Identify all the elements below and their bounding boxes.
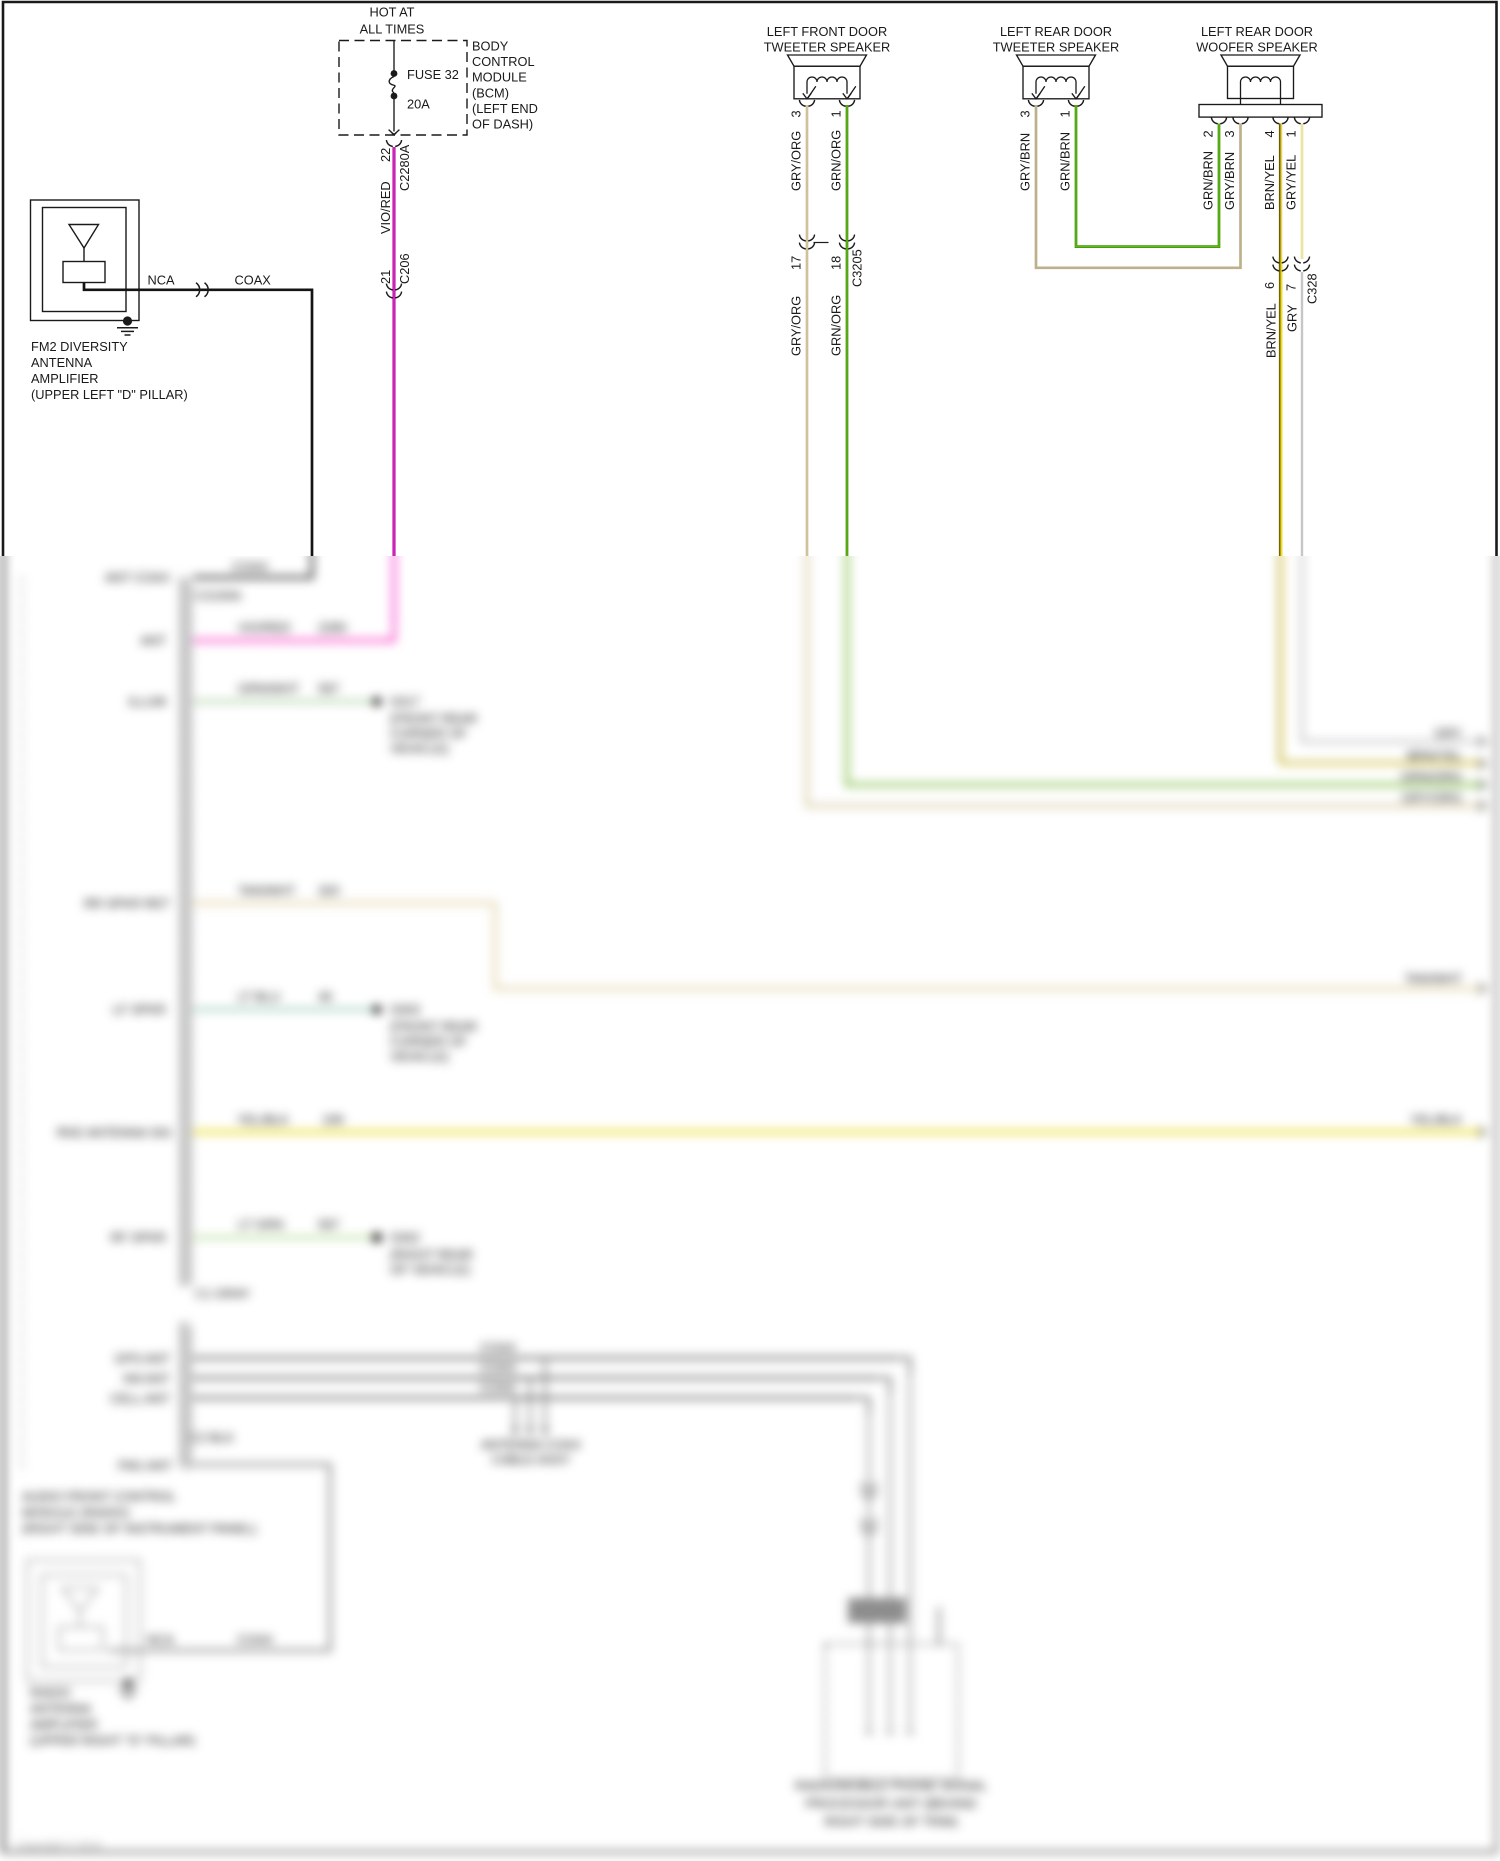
svg-text:LEFT REAR DOOR: LEFT REAR DOOR <box>1000 24 1112 39</box>
svg-text:4: 4 <box>1262 130 1277 137</box>
svg-text:C206: C206 <box>397 253 412 284</box>
svg-text:YEL/BLK: YEL/BLK <box>237 1112 289 1127</box>
svg-text:1: 1 <box>1058 110 1073 117</box>
svg-text:RF SPKR: RF SPKR <box>111 1230 166 1245</box>
svg-text:NCA: NCA <box>148 273 175 288</box>
svg-text:ANT COAX: ANT COAX <box>105 570 171 585</box>
svg-text:RR SPKR RET: RR SPKR RET <box>84 896 170 911</box>
svg-text:LEFT FRONT DOOR: LEFT FRONT DOOR <box>767 24 887 39</box>
svg-text:20A: 20A <box>407 97 430 112</box>
svg-text:NCA: NCA <box>147 1632 174 1647</box>
svg-text:(LEFT END: (LEFT END <box>472 101 538 116</box>
svg-text:3: 3 <box>1222 130 1237 137</box>
svg-text:COAX: COAX <box>480 1340 517 1355</box>
svg-text:2: 2 <box>1201 130 1216 137</box>
svg-text:C2280A: C2280A <box>397 144 412 191</box>
svg-text:1: 1 <box>1284 130 1299 137</box>
svg-text:CONTROL: CONTROL <box>472 54 535 69</box>
svg-text:COAX: COAX <box>235 273 272 288</box>
svg-text:GRY/ORG: GRY/ORG <box>1402 790 1462 805</box>
svg-text:TWEETER SPEAKER: TWEETER SPEAKER <box>764 40 891 55</box>
svg-text:COAX: COAX <box>480 1360 517 1375</box>
svg-text:GRN/BRN: GRN/BRN <box>1058 132 1073 191</box>
svg-text:GRN/WHT: GRN/WHT <box>238 681 299 696</box>
svg-text:WOOFER SPEAKER: WOOFER SPEAKER <box>1196 40 1318 55</box>
svg-text:AUDIO FRONT CONTROL: AUDIO FRONT CONTROL <box>22 1489 176 1504</box>
svg-text:587: 587 <box>318 1217 339 1232</box>
svg-text:C328: C328 <box>1305 273 1320 304</box>
svg-text:HOT AT: HOT AT <box>369 5 414 20</box>
svg-text:46: 46 <box>318 989 332 1004</box>
svg-text:LT GRN: LT GRN <box>238 1217 284 1232</box>
svg-text:AMPLIFIER: AMPLIFIER <box>31 371 99 386</box>
svg-text:RADIO/MOBILE PHONE SIGNAL: RADIO/MOBILE PHONE SIGNAL <box>795 1778 987 1793</box>
svg-text:GRY/BRN: GRY/BRN <box>1018 133 1033 191</box>
svg-text:320: 320 <box>318 883 339 898</box>
svg-text:3: 3 <box>1018 110 1033 117</box>
svg-text:GRY: GRY <box>1285 304 1300 332</box>
svg-text:GRY: GRY <box>1435 726 1463 741</box>
svg-text:C2 BLK: C2 BLK <box>190 1430 235 1445</box>
svg-text:587: 587 <box>318 681 339 696</box>
svg-text:XM ANT: XM ANT <box>122 1371 170 1386</box>
svg-text:22: 22 <box>378 148 393 162</box>
svg-text:OF VEHICLE): OF VEHICLE) <box>390 1262 470 1277</box>
svg-text:C3205: C3205 <box>850 249 865 287</box>
svg-text:RADIO: RADIO <box>30 1685 71 1700</box>
svg-text:GRN/ORG: GRN/ORG <box>829 130 844 191</box>
svg-text:VEHICLE): VEHICLE) <box>390 741 449 756</box>
svg-text:COAX: COAX <box>232 559 269 574</box>
svg-text:ILLUM: ILLUM <box>128 694 166 709</box>
svg-text:MODULE (RADIO): MODULE (RADIO) <box>22 1505 129 1520</box>
svg-text:(UPPER LEFT "D" PILLAR): (UPPER LEFT "D" PILLAR) <box>31 387 188 402</box>
svg-text:7: 7 <box>1284 284 1299 291</box>
svg-text:BRN/YEL: BRN/YEL <box>1264 303 1279 358</box>
svg-text:COAX: COAX <box>237 1632 274 1647</box>
svg-text:6: 6 <box>1262 282 1277 289</box>
svg-text:GPS ANT: GPS ANT <box>115 1351 171 1366</box>
svg-text:BRN/YEL: BRN/YEL <box>1407 748 1462 763</box>
svg-text:CELL ANT: CELL ANT <box>110 1391 170 1406</box>
svg-text:(UPPER RIGHT "D" PILLAR): (UPPER RIGHT "D" PILLAR) <box>30 1733 195 1748</box>
svg-text:TAN/WHT: TAN/WHT <box>238 883 296 898</box>
svg-text:COAX: COAX <box>480 1380 517 1395</box>
svg-text:GRY/YEL: GRY/YEL <box>1284 155 1299 210</box>
svg-text:RIGHT SIDE OF TRIM): RIGHT SIDE OF TRIM) <box>824 1814 957 1829</box>
svg-text:21: 21 <box>378 270 393 284</box>
svg-text:TAN/WHT: TAN/WHT <box>1405 971 1463 986</box>
svg-text:ANTENNA COAX: ANTENNA COAX <box>481 1437 582 1452</box>
svg-text:YEL/BLK: YEL/BLK <box>1410 1112 1462 1127</box>
svg-text:199: 199 <box>322 1112 343 1127</box>
svg-text:GRN/ORG: GRN/ORG <box>829 295 844 356</box>
svg-text:BODY: BODY <box>472 39 509 54</box>
svg-text:LEFT REAR DOOR: LEFT REAR DOOR <box>1201 24 1313 39</box>
svg-text:S302: S302 <box>390 1230 420 1245</box>
svg-text:(BCM): (BCM) <box>472 85 509 100</box>
svg-text:(FRONT REAR: (FRONT REAR <box>390 1019 477 1034</box>
svg-text:TWEETER SPEAKER: TWEETER SPEAKER <box>993 40 1120 55</box>
svg-text:VIO/RED: VIO/RED <box>378 181 393 234</box>
svg-text:CORNER OF: CORNER OF <box>390 726 467 741</box>
svg-text:GRY/ORG: GRY/ORG <box>789 131 804 191</box>
svg-text:GRY/ORG: GRY/ORG <box>789 296 804 356</box>
svg-text:GRN/ORG: GRN/ORG <box>1401 769 1462 784</box>
svg-text:18: 18 <box>829 256 844 270</box>
svg-text:ANT: ANT <box>140 633 166 648</box>
svg-text:PROCESSOR UNIT (BEHIND: PROCESSOR UNIT (BEHIND <box>805 1796 976 1811</box>
svg-text:C1 GRAY: C1 GRAY <box>195 1286 251 1301</box>
svg-text:ANTENNA: ANTENNA <box>30 1701 92 1716</box>
svg-text:1: 1 <box>829 110 844 117</box>
svg-text:MODULE: MODULE <box>472 70 527 85</box>
svg-text:OF DASH): OF DASH) <box>472 117 533 132</box>
svg-text:LF SPKR: LF SPKR <box>113 1002 166 1017</box>
svg-text:GRN/BRN: GRN/BRN <box>1201 151 1216 210</box>
svg-text:ALL TIMES: ALL TIMES <box>360 22 425 37</box>
svg-text:AMPLIFIER: AMPLIFIER <box>30 1717 98 1732</box>
svg-text:BRN/YEL: BRN/YEL <box>1262 155 1277 210</box>
svg-text:C2100A: C2100A <box>195 588 242 603</box>
svg-text:FUSE 32: FUSE 32 <box>407 67 459 82</box>
svg-text:CORNER OF: CORNER OF <box>390 1034 467 1049</box>
svg-text:17: 17 <box>789 256 804 270</box>
svg-text:2280: 2280 <box>318 620 346 635</box>
svg-text:ANTENNA: ANTENNA <box>31 355 93 370</box>
svg-text:3: 3 <box>789 110 804 117</box>
svg-text:CABLE ASSY: CABLE ASSY <box>492 1452 571 1467</box>
svg-text:(RIGHT SIDE OF INSTRUMENT PANE: (RIGHT SIDE OF INSTRUMENT PANEL) <box>22 1521 257 1536</box>
svg-text:GRY/BRN: GRY/BRN <box>1222 152 1237 210</box>
svg-text:(RIGHT REAR: (RIGHT REAR <box>390 1247 473 1262</box>
svg-text:LT BLU: LT BLU <box>238 989 280 1004</box>
svg-text:(FRONT REAR: (FRONT REAR <box>390 711 477 726</box>
svg-text:RKE ANTENNA SIG: RKE ANTENNA SIG <box>57 1125 172 1140</box>
svg-text:FM2 DIVERSITY: FM2 DIVERSITY <box>31 339 128 354</box>
svg-text:VIO/RED: VIO/RED <box>238 620 291 635</box>
svg-text:Copyright © 2010: Copyright © 2010 <box>16 1840 102 1852</box>
svg-text:FM1 ANT: FM1 ANT <box>118 1458 172 1473</box>
svg-text:S317: S317 <box>390 694 420 709</box>
svg-text:S303: S303 <box>390 1002 420 1017</box>
svg-text:VEHICLE): VEHICLE) <box>390 1049 449 1064</box>
